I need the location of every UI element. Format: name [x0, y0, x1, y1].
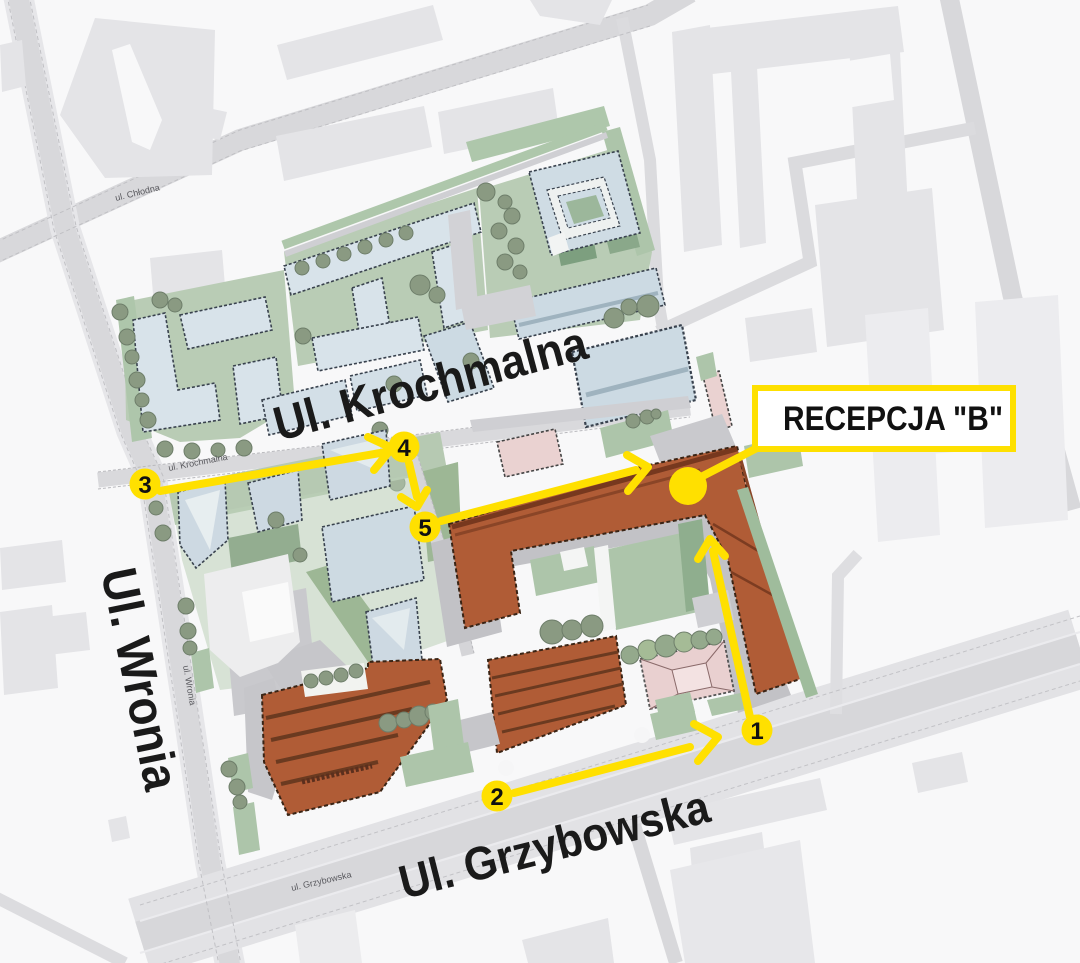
svg-text:RECEPCJA "B": RECEPCJA "B" — [783, 400, 1003, 438]
svg-text:1: 1 — [750, 718, 763, 745]
svg-text:2: 2 — [490, 784, 503, 811]
svg-text:5: 5 — [418, 515, 431, 542]
svg-text:4: 4 — [397, 435, 411, 462]
svg-text:3: 3 — [138, 472, 151, 499]
